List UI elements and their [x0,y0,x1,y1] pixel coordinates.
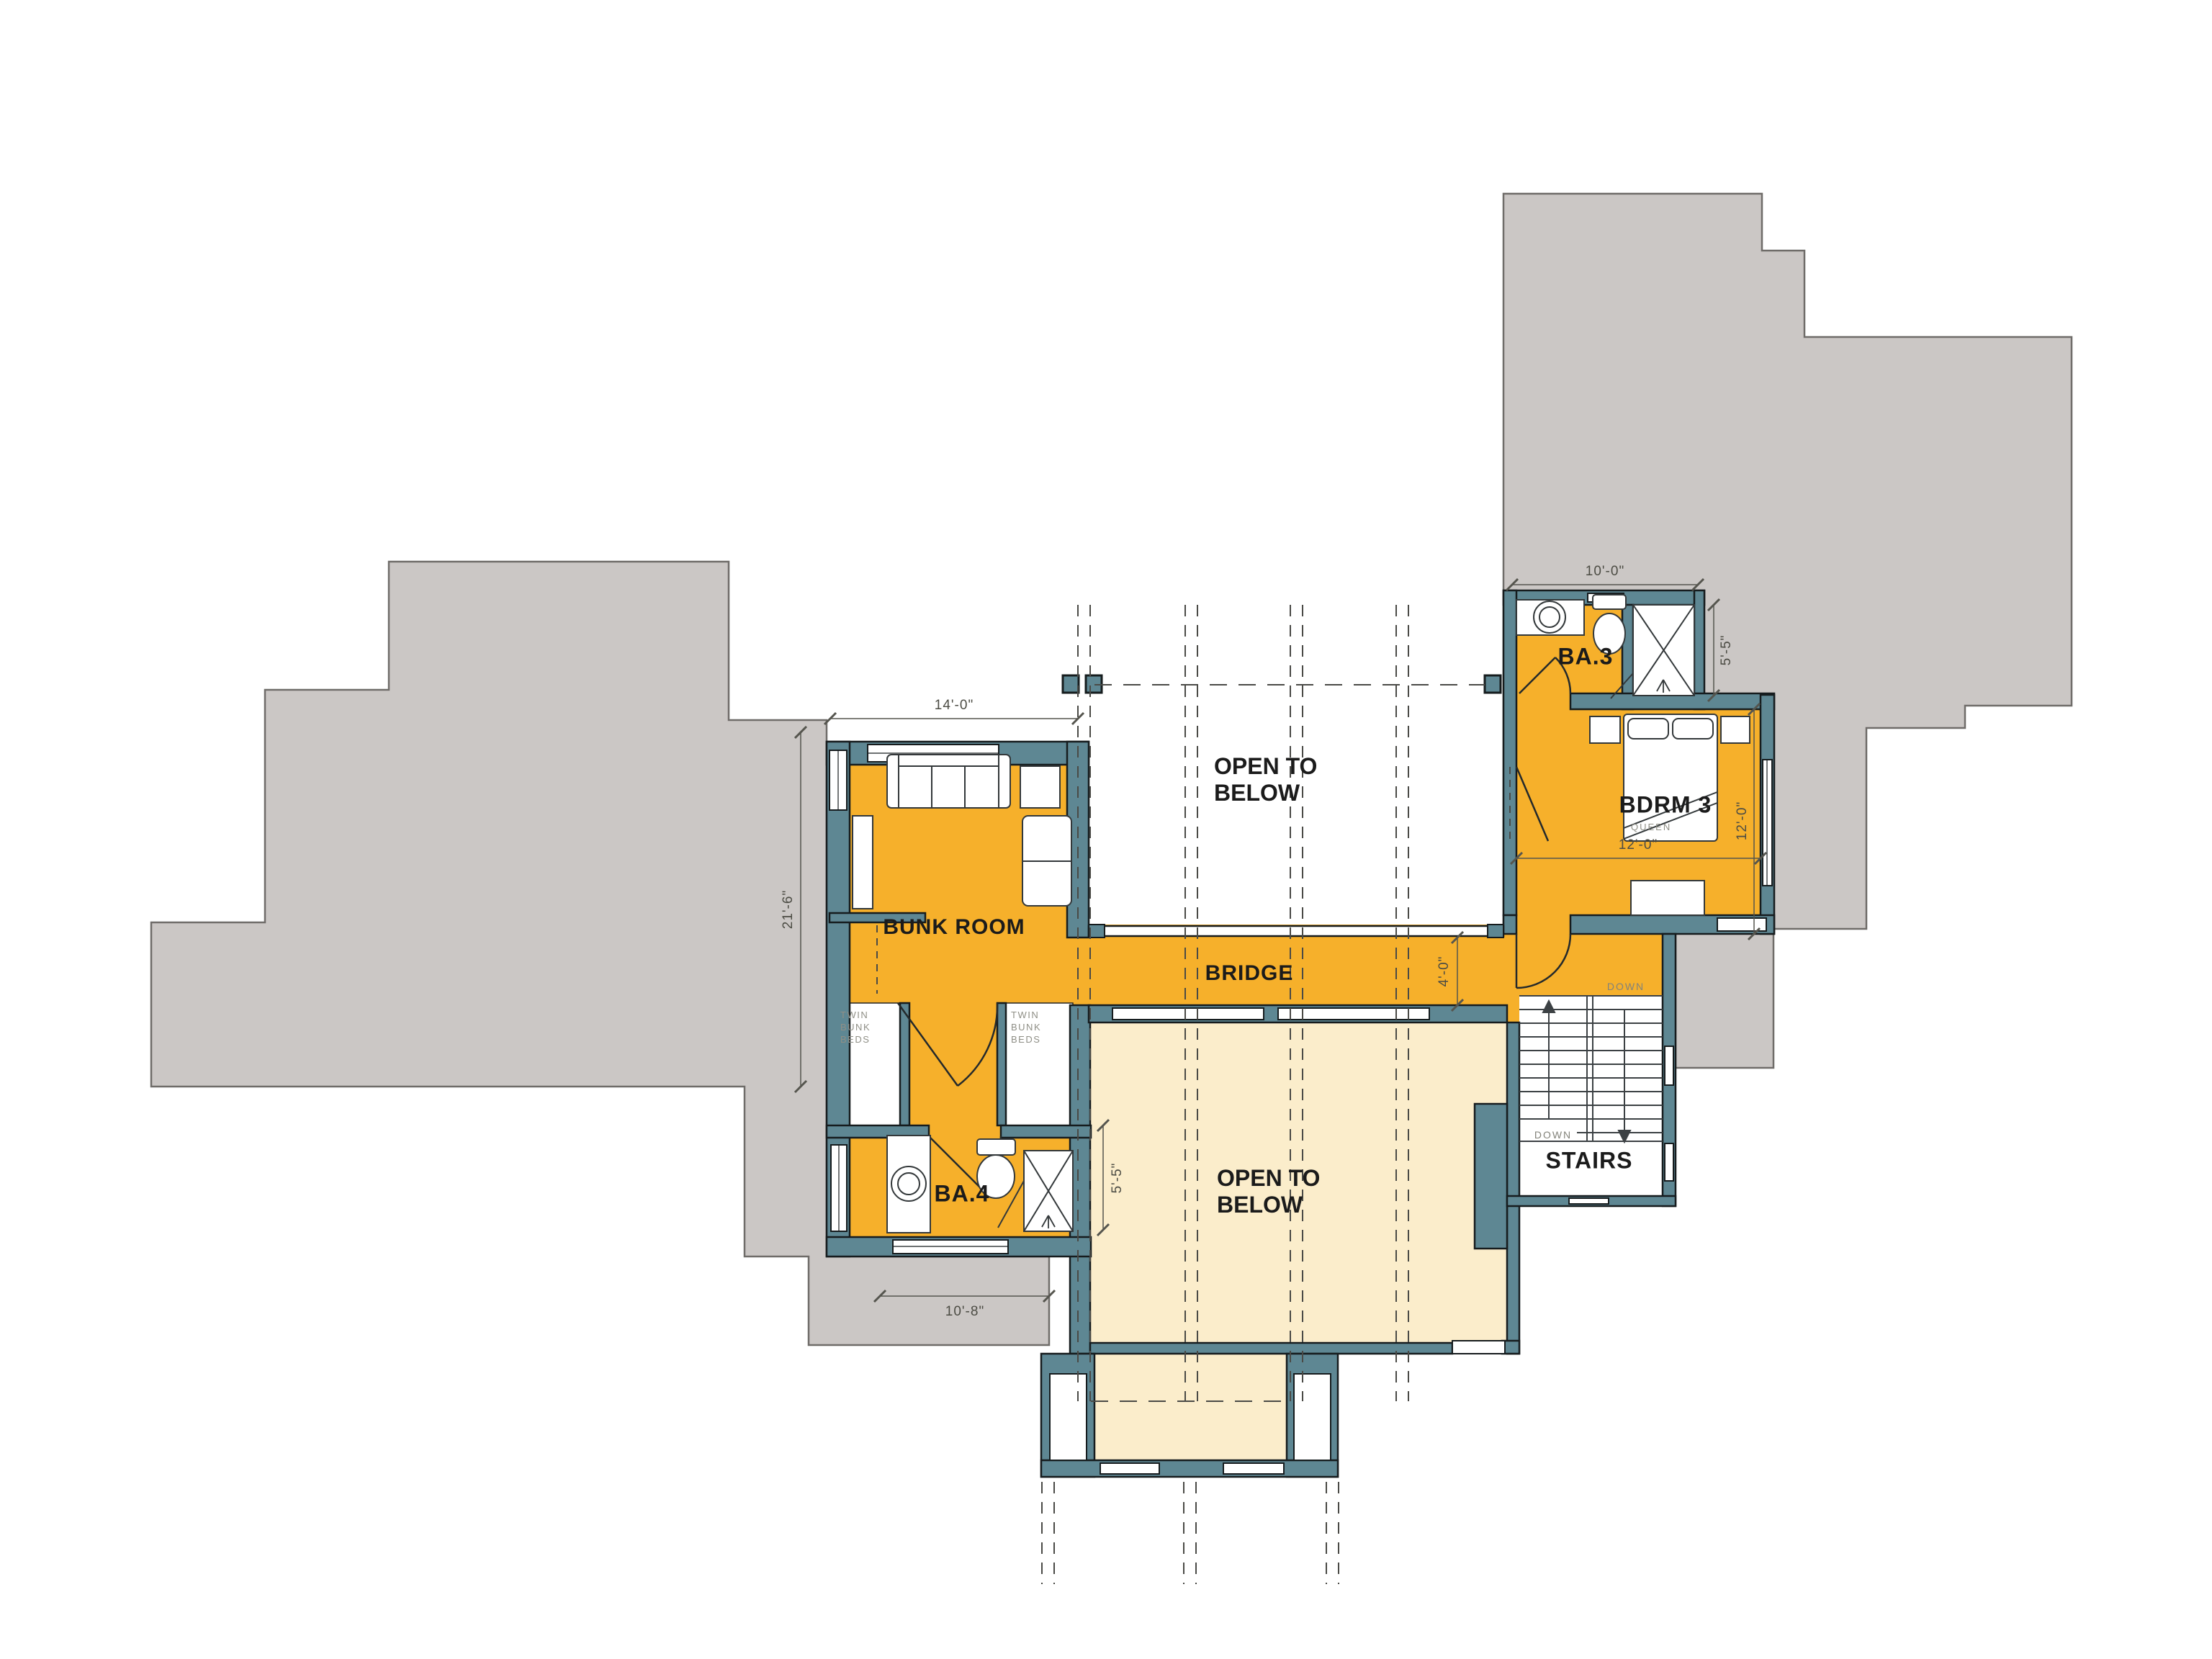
wall-bdrm3-south-left [1503,915,1516,934]
bunk-room-label: BUNK ROOM [883,915,1025,940]
floor-plan-page: { "colors": { "room_fill": "#F6B02B", "o… [0,0,2212,1659]
vanity-sink-icon-ba4 [887,1136,930,1233]
nightstand-icon-right [1721,716,1750,743]
bunk-corridor-floor [900,1003,1006,1125]
wall-alcove-divider-2 [997,1003,1006,1125]
wall-bay-bottom [1041,1460,1338,1477]
dim-ba3-depth: 5'-5" [1719,635,1735,666]
stairs-floor [1519,996,1663,1206]
open-to-below-lower-label: OPEN TO BELOW [1217,1165,1339,1218]
dim-ba3-width: 10'-0" [1586,564,1624,580]
dim-ba4-width: 10'-8" [945,1304,984,1320]
window-bay-bottom-2 [1223,1463,1284,1474]
dim-ba4-depth: 5'-5" [1110,1163,1125,1194]
wall-open-below-south [1090,1343,1452,1354]
vanity-sink-icon-ba3 [1516,600,1584,635]
window-bay-left [1050,1374,1087,1460]
window-stairs-east-2 [1665,1143,1673,1181]
window-bridge-south-2 [1278,1008,1429,1020]
window-stairs-east-1 [1665,1046,1673,1085]
dim-bunk-width: 14'-0" [935,698,974,714]
bridge-rail-post-west [1089,925,1105,938]
wall-ba3-west [1503,590,1516,915]
down-label-upper: DOWN [1607,981,1645,992]
bridge-north-rail [1089,926,1503,936]
floor-plan-drawing [0,0,2212,1659]
queen-bed-label: QUEEN [1631,822,1671,832]
down-label-lower: DOWN [1534,1129,1572,1141]
ba4-label: BA.4 [935,1181,990,1208]
sofa-icon [887,755,1010,808]
dim-bdrm3-width: 12'-0" [1619,837,1658,853]
window-bay-bottom-1 [1100,1463,1159,1474]
dim-bridge-width: 4'-0" [1437,956,1452,987]
window-open-below-south [1452,1341,1505,1354]
window-bridge-south-1 [1112,1008,1264,1020]
desk-icon [1631,881,1704,915]
wall-open-below-east [1507,1022,1519,1354]
bridge-rail-post-east [1488,925,1503,938]
dim-bdrm3-depth: 12'-0" [1735,801,1750,840]
twin-bunk-left-label: TWIN BUNK BEDS [840,1010,896,1046]
armchair-icon [1020,766,1060,808]
bridge-label: BRIDGE [1205,961,1294,986]
bridge-railing [1089,925,1503,938]
nightstand-icon-left [1590,716,1620,743]
stairs-label: STAIRS [1546,1148,1633,1174]
twin-bunk-right-label: TWIN BUNK BEDS [1011,1010,1067,1046]
dresser-icon [853,816,873,909]
window-stairs-south [1569,1198,1609,1204]
post-open-area-3 [1485,675,1501,693]
ba3-label: BA.3 [1558,644,1614,670]
post-open-area-1 [1063,675,1079,693]
dim-bunk-depth: 21'-6" [781,890,796,929]
wall-alcove-divider-1 [900,1003,909,1125]
chaise-icon [1022,816,1071,906]
open-to-below-upper-label: OPEN TO BELOW [1214,753,1336,806]
bdrm3-label: BDRM 3 [1619,792,1712,819]
wall-ba3-east [1694,590,1704,709]
wall-chimney-block [1475,1104,1507,1249]
window-bay-right [1294,1374,1331,1460]
